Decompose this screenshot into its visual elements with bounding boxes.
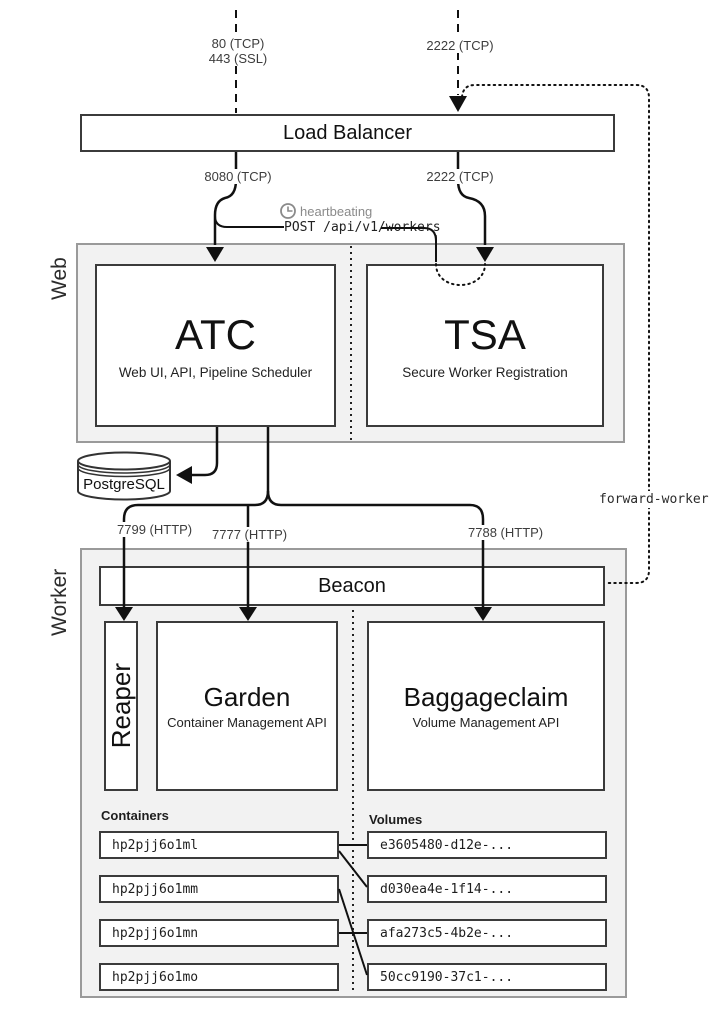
container-row: hp2pjj6o1mm <box>99 875 339 903</box>
baggageclaim-title: Baggageclaim <box>404 682 569 713</box>
lb-web-port-label: 8080 (TCP) <box>186 169 290 184</box>
lb-ssh-port-label: 2222 (TCP) <box>408 169 512 184</box>
external-web-ports-label: 80 (TCP) 443 (SSL) <box>186 36 290 66</box>
container-id: hp2pjj6o1mo <box>112 970 198 985</box>
heartbeat-request-label: POST /api/v1/workers <box>284 220 441 235</box>
containers-heading: Containers <box>101 808 169 823</box>
garden-box: Garden Container Management API <box>156 621 338 791</box>
volume-row: 50cc9190-37c1-... <box>367 963 607 991</box>
volume-row: d030ea4e-1f14-... <box>367 875 607 903</box>
volumes-heading: Volumes <box>369 812 422 827</box>
beacon-box: Beacon <box>99 566 605 606</box>
worker-group-label: Worker <box>48 550 72 655</box>
volume-row: e3605480-d12e-... <box>367 831 607 859</box>
atc-box: ATC Web UI, API, Pipeline Scheduler <box>95 264 336 427</box>
concourse-architecture-diagram: { "external": { "web_ports": ["80 (TCP)"… <box>0 0 722 1032</box>
container-row: hp2pjj6o1mo <box>99 963 339 991</box>
garden-title: Garden <box>204 682 291 713</box>
external-port-80: 80 (TCP) <box>188 36 288 51</box>
forward-worker-label: forward-worker <box>597 491 711 508</box>
container-row: hp2pjj6o1mn <box>99 919 339 947</box>
reaper-box: Reaper <box>104 621 138 791</box>
baggageclaim-box: Baggageclaim Volume Management API <box>367 621 605 791</box>
container-id: hp2pjj6o1mn <box>112 926 198 941</box>
reaper-title: Reaper <box>106 663 137 748</box>
tsa-subtitle: Secure Worker Registration <box>402 365 568 380</box>
beacon-title: Beacon <box>318 575 386 598</box>
volume-id: 50cc9190-37c1-... <box>380 970 513 985</box>
garden-subtitle: Container Management API <box>167 715 327 730</box>
external-ssh-port-label: 2222 (TCP) <box>408 38 512 53</box>
arrowhead-into-postgres <box>176 466 192 484</box>
lb-to-tsa-line <box>458 152 485 245</box>
load-balancer-box: Load Balancer <box>80 114 615 152</box>
volume-id: e3605480-d12e-... <box>380 838 513 853</box>
atc-subtitle: Web UI, API, Pipeline Scheduler <box>119 365 312 380</box>
baggageclaim-subtitle: Volume Management API <box>413 715 560 730</box>
volume-id: d030ea4e-1f14-... <box>380 882 513 897</box>
container-id: hp2pjj6o1mm <box>112 882 198 897</box>
container-id: hp2pjj6o1ml <box>112 838 198 853</box>
heartbeating-label: heartbeating <box>300 204 372 219</box>
garden-port-label: 7777 (HTTP) <box>210 527 289 542</box>
container-row: hp2pjj6o1ml <box>99 831 339 859</box>
volume-id: afa273c5-4b2e-... <box>380 926 513 941</box>
atc-title: ATC <box>175 311 256 359</box>
reaper-port-label: 7799 (HTTP) <box>115 522 194 537</box>
load-balancer-title: Load Balancer <box>283 122 412 145</box>
baggageclaim-port-label: 7788 (HTTP) <box>466 525 545 540</box>
external-port-443: 443 (SSL) <box>188 51 288 66</box>
clock-icon <box>281 204 295 218</box>
volume-row: afa273c5-4b2e-... <box>367 919 607 947</box>
lb-to-atc-line <box>215 152 236 245</box>
postgres-label: PostgreSQL <box>78 476 170 493</box>
arrowhead-into-load-balancer <box>449 96 467 112</box>
web-group-label: Web <box>48 250 72 308</box>
tsa-title: TSA <box>444 311 526 359</box>
tsa-box: TSA Secure Worker Registration <box>366 264 604 427</box>
